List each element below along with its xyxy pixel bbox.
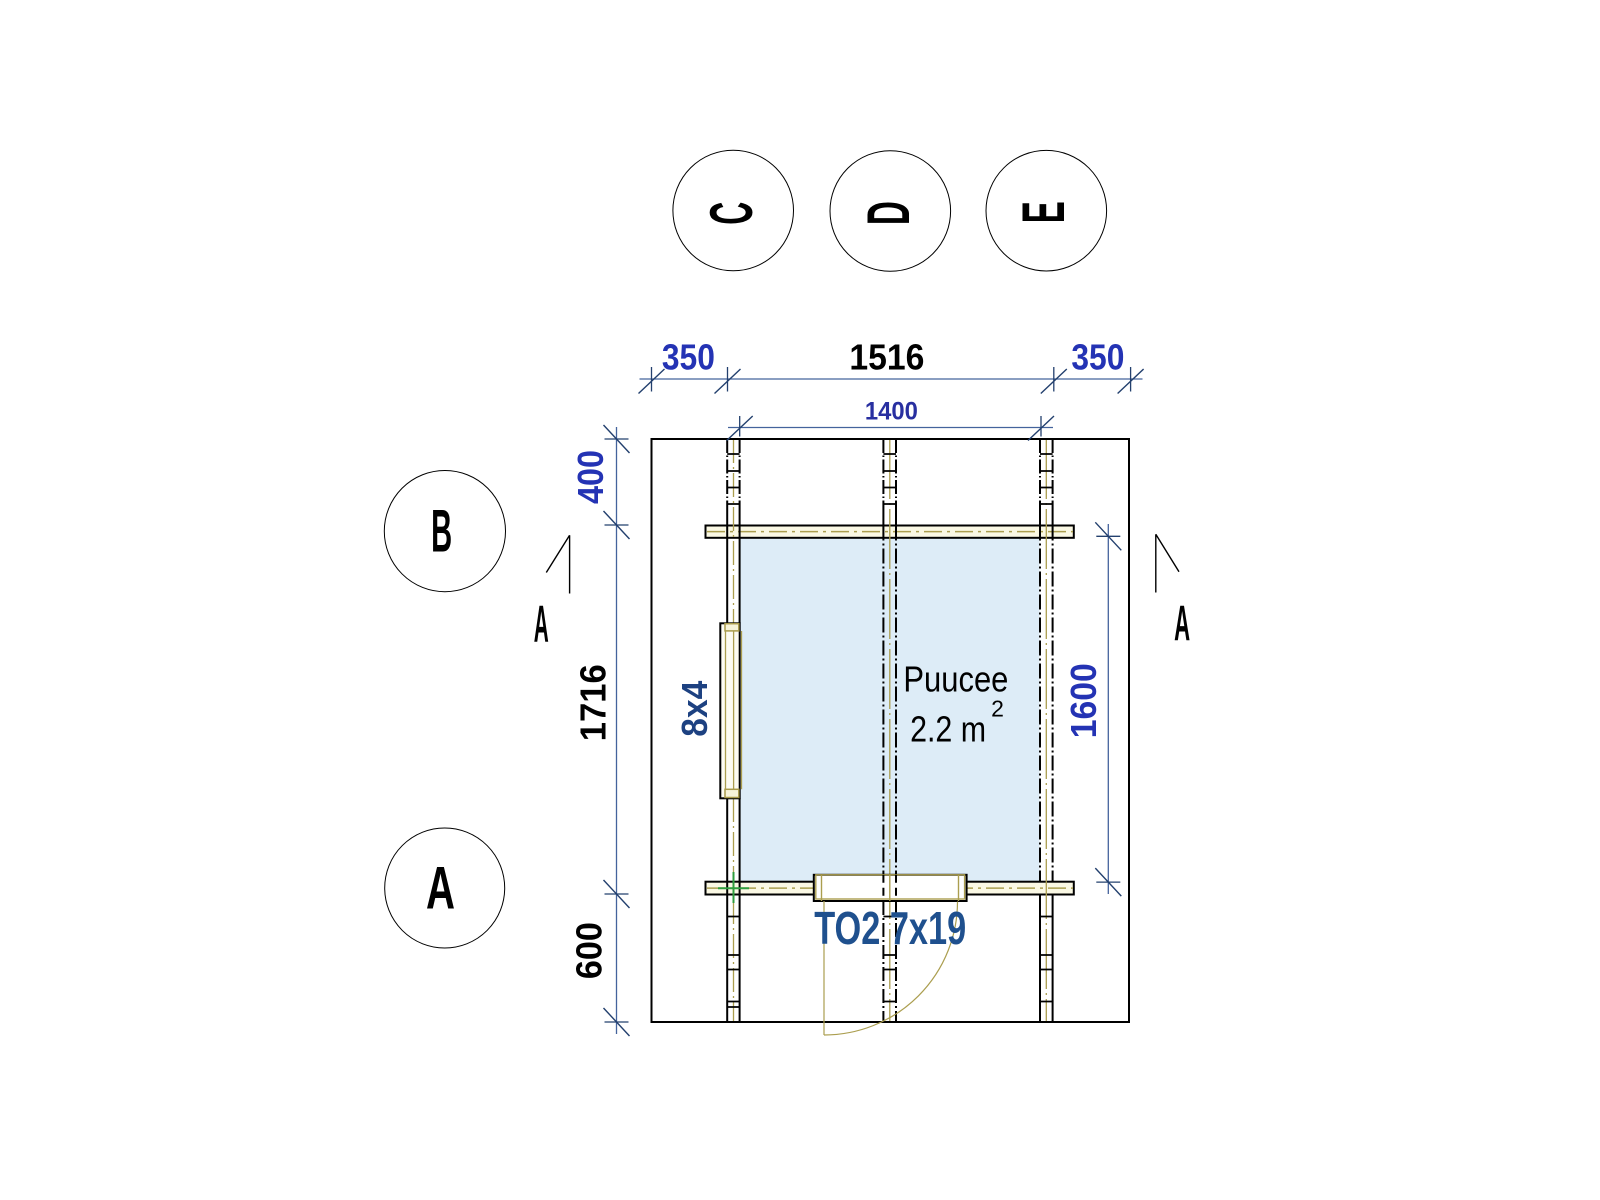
svg-text:A: A bbox=[426, 855, 455, 922]
svg-text:A: A bbox=[534, 595, 549, 653]
svg-text:E: E bbox=[1010, 201, 1077, 223]
svg-text:B: B bbox=[431, 498, 452, 565]
svg-text:TO2 7x19: TO2 7x19 bbox=[814, 902, 966, 954]
svg-text:350: 350 bbox=[662, 336, 715, 377]
svg-text:600: 600 bbox=[568, 922, 609, 979]
svg-text:Puucee: Puucee bbox=[903, 659, 1008, 700]
svg-text:8x4: 8x4 bbox=[674, 681, 715, 737]
svg-text:1516: 1516 bbox=[849, 336, 924, 377]
svg-text:C: C bbox=[698, 202, 765, 225]
svg-text:D: D bbox=[855, 201, 922, 225]
svg-text:1400: 1400 bbox=[865, 397, 918, 425]
svg-text:A: A bbox=[1174, 595, 1190, 651]
svg-text:400: 400 bbox=[570, 450, 611, 504]
svg-text:1600: 1600 bbox=[1063, 663, 1104, 738]
svg-text:350: 350 bbox=[1071, 336, 1124, 377]
svg-text:2.2 m: 2.2 m bbox=[910, 708, 986, 749]
svg-text:2: 2 bbox=[991, 696, 1004, 722]
svg-text:1716: 1716 bbox=[572, 664, 613, 741]
